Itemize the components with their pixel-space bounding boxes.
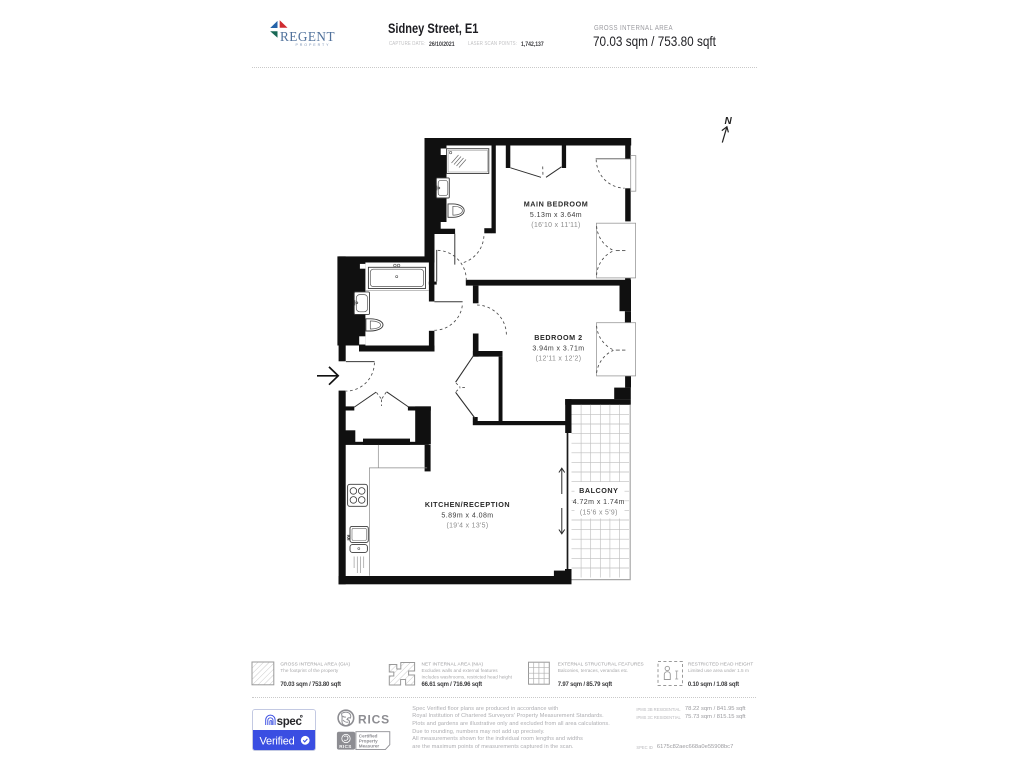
svg-text:The footprint of the property: The footprint of the property xyxy=(280,668,339,673)
svg-text:GROSS INTERNAL AREA (GIA): GROSS INTERNAL AREA (GIA) xyxy=(280,662,350,667)
svg-text:Excludes walls and external fe: Excludes walls and external features xyxy=(422,668,499,673)
svg-text:RICS: RICS xyxy=(339,744,352,749)
svg-text:RICS: RICS xyxy=(358,713,390,727)
svg-text:0.10 sqm / 1.08 sqft: 0.10 sqm / 1.08 sqft xyxy=(688,682,739,688)
svg-text:Limited use area under 1.5 m: Limited use area under 1.5 m xyxy=(688,668,749,673)
svg-text:7.97 sqm / 85.79 sqft: 7.97 sqm / 85.79 sqft xyxy=(558,682,612,688)
svg-text:66.61 sqm / 716.96 sqft: 66.61 sqm / 716.96 sqft xyxy=(422,682,483,688)
svg-text:5.13m x 3.64m: 5.13m x 3.64m xyxy=(530,212,582,219)
svg-text:70.03 sqm / 753.80 sqft: 70.03 sqm / 753.80 sqft xyxy=(280,682,341,688)
svg-text:4.72m x 1.74m: 4.72m x 1.74m xyxy=(573,499,625,506)
svg-text:RESTRICTED HEAD HEIGHT: RESTRICTED HEAD HEIGHT xyxy=(688,662,754,667)
svg-text:MAIN BEDROOM: MAIN BEDROOM xyxy=(524,200,589,209)
svg-text:Verified: Verified xyxy=(259,735,294,747)
svg-text:Balconies, terraces, verandas: Balconies, terraces, verandas etc. xyxy=(558,668,629,673)
svg-text:(12'11 x 12'2): (12'11 x 12'2) xyxy=(536,356,582,363)
svg-text:3.94m x 3.71m: 3.94m x 3.71m xyxy=(532,345,584,352)
svg-text:NET INTERNAL AREA (NIA): NET INTERNAL AREA (NIA) xyxy=(422,662,484,667)
svg-text:BEDROOM 2: BEDROOM 2 xyxy=(534,333,582,342)
svg-text:5.89m x 4.08m: 5.89m x 4.08m xyxy=(441,512,493,519)
svg-text:(15'6 x 5'9): (15'6 x 5'9) xyxy=(580,509,618,516)
svg-text:EXTERNAL STRUCTURAL FEATURES: EXTERNAL STRUCTURAL FEATURES xyxy=(558,662,644,667)
svg-text:spec: spec xyxy=(276,716,302,728)
svg-text:(16'10 x 11'11): (16'10 x 11'11) xyxy=(531,222,580,229)
svg-text:KITCHEN/RECEPTION: KITCHEN/RECEPTION xyxy=(425,500,510,509)
svg-text:Includes washrooms, restricted: Includes washrooms, restricted head heig… xyxy=(422,675,513,680)
svg-text:BALCONY: BALCONY xyxy=(579,486,618,495)
svg-text:Measurer: Measurer xyxy=(359,744,380,749)
svg-text:(19'4 x 13'5): (19'4 x 13'5) xyxy=(446,523,488,530)
svg-text:N: N xyxy=(725,116,733,127)
